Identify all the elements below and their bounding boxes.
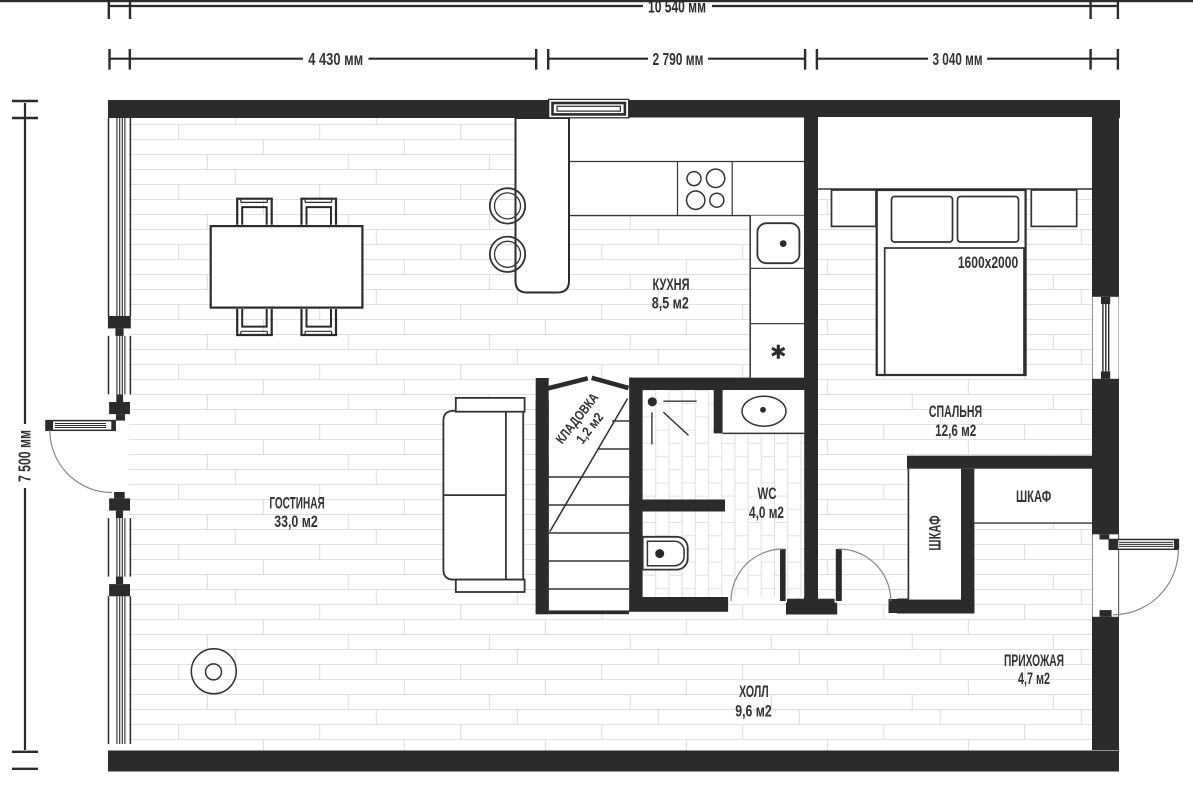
svg-text:2 790 мм: 2 790 мм: [653, 49, 704, 69]
svg-text:4,7 м2: 4,7 м2: [1018, 669, 1050, 688]
svg-text:4 430 мм: 4 430 мм: [308, 49, 363, 69]
svg-text:КУХНЯ: КУХНЯ: [653, 275, 690, 294]
svg-text:10 540 мм: 10 540 мм: [648, 0, 706, 16]
svg-text:СПАЛЬНЯ: СПАЛЬНЯ: [929, 402, 982, 421]
svg-text:3 040 мм: 3 040 мм: [933, 49, 983, 69]
svg-text:4,0 м2: 4,0 м2: [749, 503, 784, 522]
svg-text:12,6 м2: 12,6 м2: [935, 421, 976, 440]
svg-text:ШКАФ: ШКАФ: [926, 515, 945, 550]
svg-text:ХОЛЛ: ХОЛЛ: [739, 682, 769, 701]
svg-text:8,5 м2: 8,5 м2: [652, 294, 689, 313]
svg-text:7 500 мм: 7 500 мм: [15, 430, 35, 482]
svg-text:ШКАФ: ШКАФ: [1016, 487, 1051, 506]
svg-text:1600x2000: 1600x2000: [958, 253, 1018, 272]
svg-text:9,6 м2: 9,6 м2: [735, 702, 772, 721]
svg-text:WC: WC: [758, 484, 777, 503]
svg-text:33,0 м2: 33,0 м2: [274, 512, 318, 531]
svg-text:ПРИХОЖАЯ: ПРИХОЖАЯ: [1004, 651, 1064, 670]
svg-text:ГОСТИНАЯ: ГОСТИНАЯ: [269, 494, 324, 513]
